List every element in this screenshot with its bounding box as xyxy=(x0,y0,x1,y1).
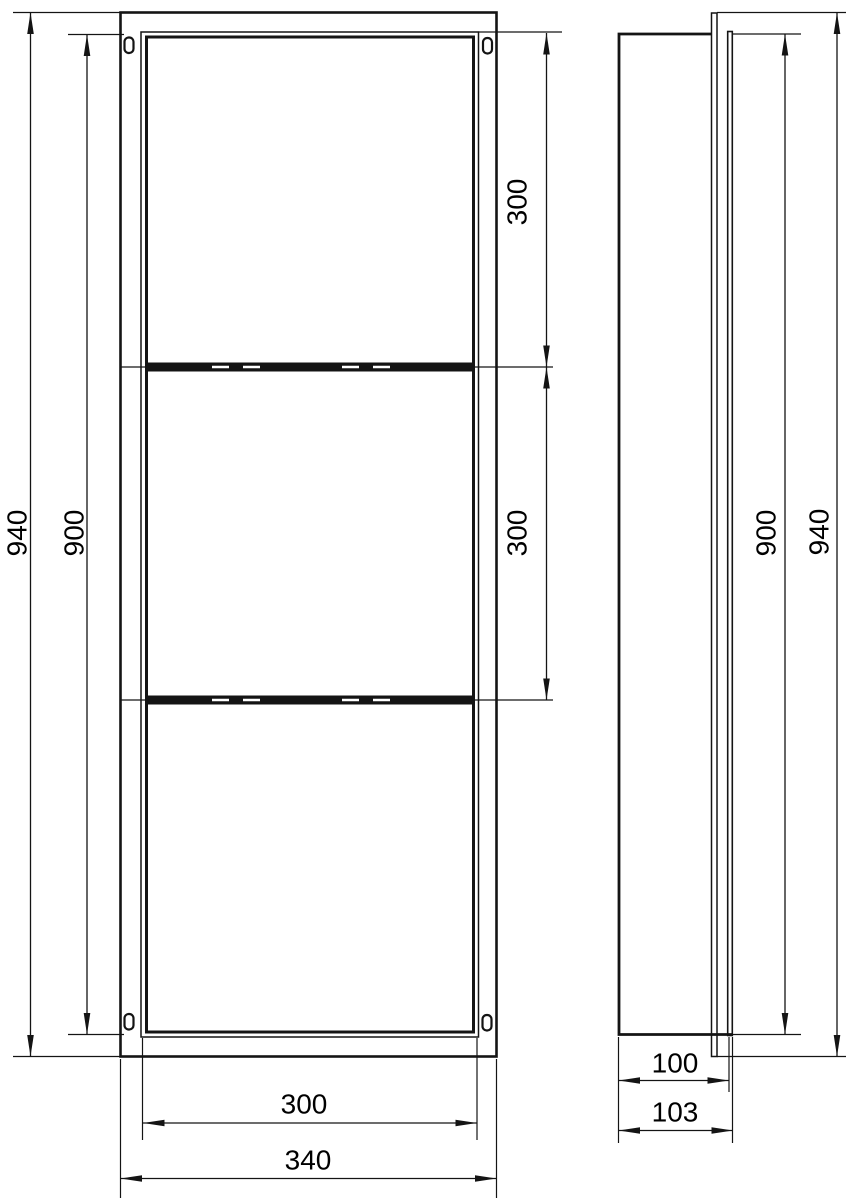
shelf-2 xyxy=(147,696,474,705)
opening-outline-outer xyxy=(141,32,479,1037)
opening-outline-inner xyxy=(147,37,474,1032)
dim-value-overall-width: 340 xyxy=(285,1145,332,1176)
dim-value-overall-depth: 103 xyxy=(652,1097,699,1128)
mounting-slot-top-right xyxy=(483,38,492,54)
dim-value-recess-depth: 100 xyxy=(652,1048,699,1079)
mounting-slot-bottom-left xyxy=(125,1014,134,1030)
technical-drawing: 940 900 300 300 300 340 900 940 xyxy=(0,0,857,1200)
niche-body-profile xyxy=(619,34,733,1035)
front-view: 940 900 300 300 300 340 xyxy=(2,13,563,1199)
dim-value-opening-width: 300 xyxy=(281,1089,328,1120)
mounting-slot-bottom-right xyxy=(483,1015,492,1031)
front-view-dimensions: 940 900 300 300 300 340 xyxy=(2,13,547,1179)
mounting-slot-top-left xyxy=(125,38,134,54)
side-view: 900 940 100 103 xyxy=(619,13,847,1144)
flange-plate-profile xyxy=(712,13,718,1057)
drawing-canvas: 940 900 300 300 300 340 900 940 xyxy=(0,0,857,1200)
dim-value-side-opening-height: 900 xyxy=(751,510,782,557)
dim-value-side-overall-height: 940 xyxy=(804,509,835,556)
dim-value-opening-height: 900 xyxy=(59,510,90,557)
dim-value-top-compartment: 300 xyxy=(502,179,533,226)
front-face-profile xyxy=(728,32,733,1036)
dim-value-middle-compartment: 300 xyxy=(502,510,533,557)
outer-frame xyxy=(121,13,497,1057)
shelf-1 xyxy=(147,363,474,372)
dim-value-overall-height: 940 xyxy=(2,510,33,557)
